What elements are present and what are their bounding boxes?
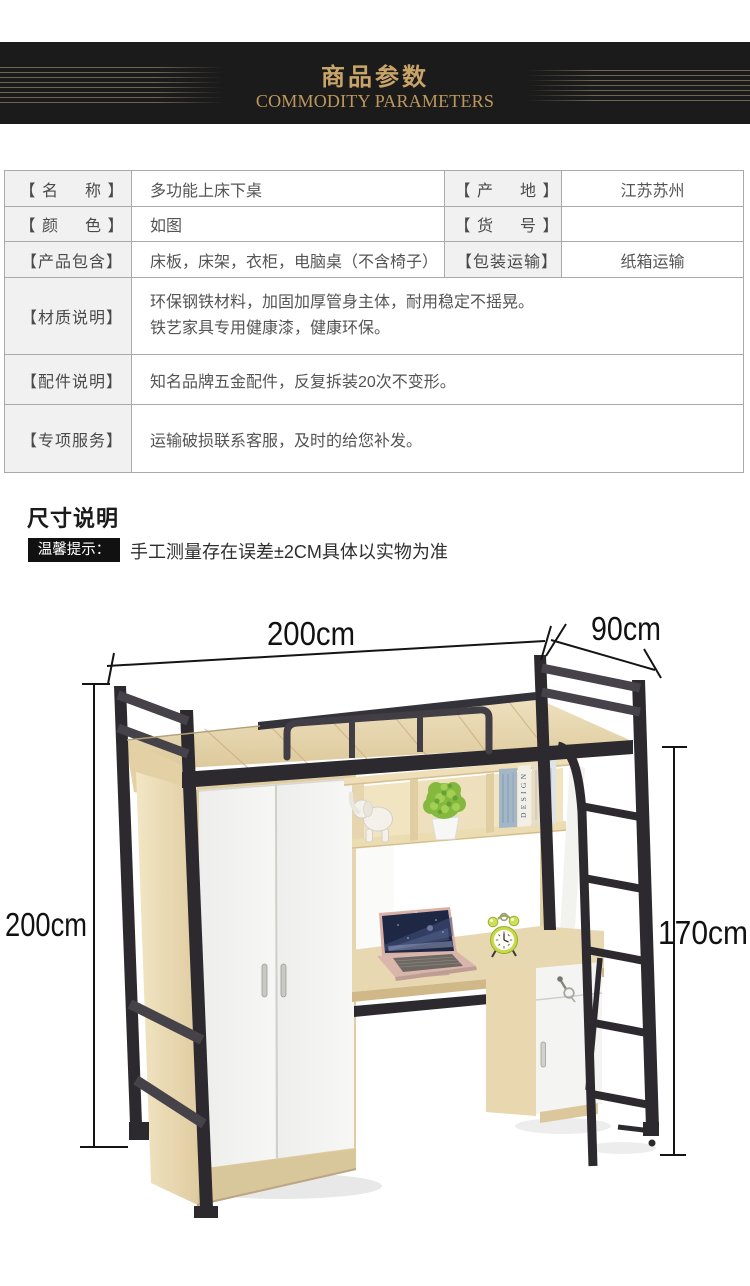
svg-text:170cm: 170cm	[658, 914, 748, 951]
svg-text:90cm: 90cm	[591, 610, 661, 647]
svg-text:200cm: 200cm	[5, 906, 87, 943]
svg-text:200cm: 200cm	[267, 615, 355, 652]
